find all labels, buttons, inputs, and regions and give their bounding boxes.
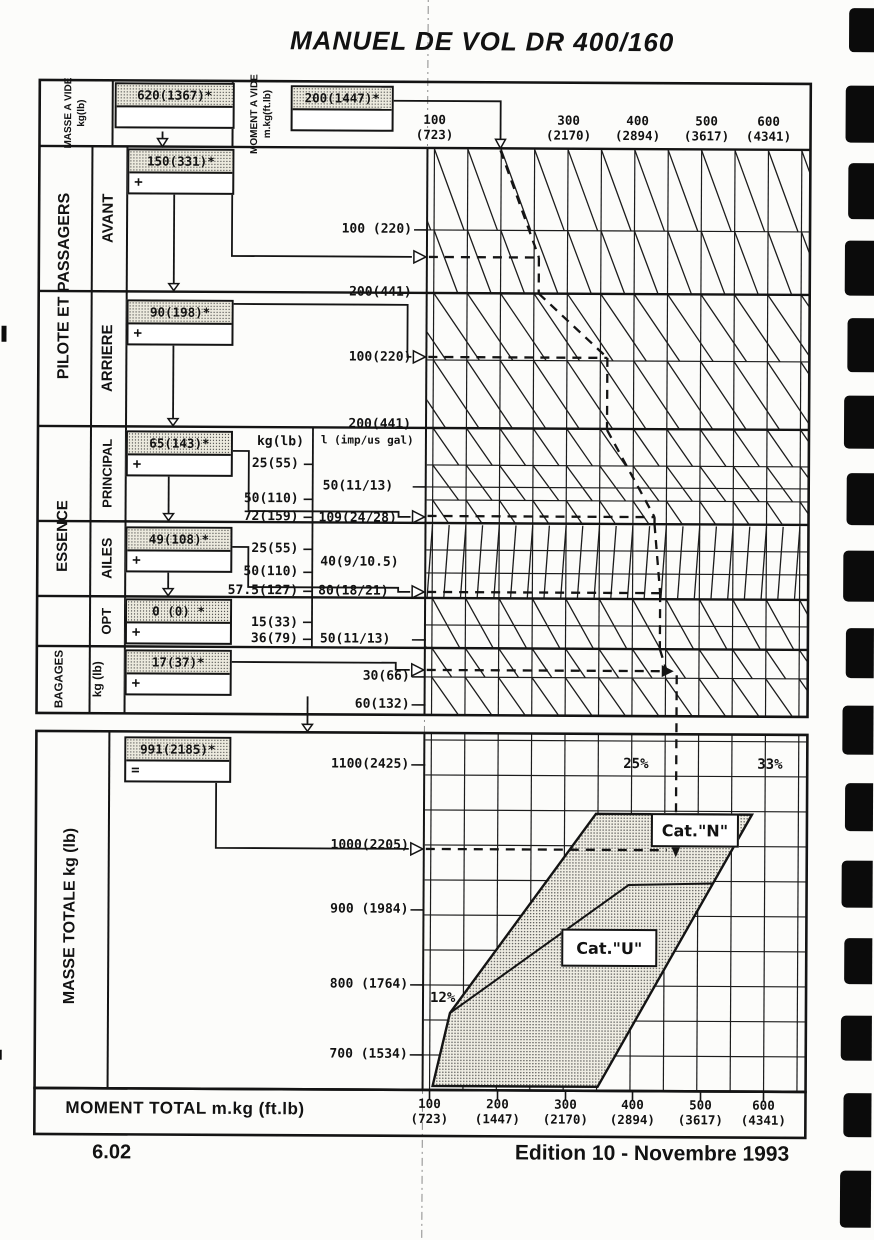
- section-main-tank-label: PRINCIPAL: [99, 439, 116, 508]
- baggage-value: 17(37)*: [127, 651, 230, 675]
- section-wing-tanks-label: AILES: [98, 538, 116, 579]
- total-scale-900: 900 (1984): [318, 901, 408, 916]
- wings-l-80: 80(18/21): [318, 583, 389, 598]
- edition-footer: Edition 10 - Novembre 1993: [389, 1141, 789, 1167]
- empty-moment-unit: m.kg(ft.lb): [261, 74, 274, 154]
- baggage-scale-30: 30(66): [330, 668, 410, 683]
- rear-scale-200: 200(441): [331, 416, 411, 431]
- front-seats-op: +: [129, 173, 232, 193]
- section-fuel-label: ESSENCE: [54, 500, 73, 572]
- total-mass-value: 991(2185)*: [126, 738, 229, 762]
- page-sheet: MANUEL DE VOL DR 400/160 MASSE A VIDE kg…: [0, 0, 874, 1240]
- upper-axis-100: 100(723): [416, 112, 454, 142]
- bottom-axis-title: MOMENT TOTAL m.kg (ft.lb): [65, 1098, 304, 1119]
- wing-tanks-box: 49(108)* +: [125, 526, 232, 573]
- wing-tanks-value: 49(108)*: [127, 528, 230, 552]
- rear-seats-op: +: [128, 324, 231, 344]
- empty-moment-label-text: MOMENT A VIDE: [249, 74, 262, 154]
- main-l-50: 50(11/13): [323, 478, 394, 493]
- baggage-scale-60: 60(132): [330, 696, 410, 711]
- section-opt-tank-label: OPT: [99, 608, 115, 635]
- section-front-label: AVANT: [100, 194, 119, 244]
- opt-kg-15: 15(33): [225, 615, 298, 630]
- opt-kg-36: 36(79): [225, 631, 298, 646]
- wings-kg-25: 25(55): [225, 541, 298, 556]
- upper-axis-300: 300(2170): [546, 113, 591, 143]
- section-rear-label: ARRIERE: [99, 324, 118, 392]
- total-scale-700: 700 (1534): [318, 1046, 408, 1061]
- wing-tanks-op: +: [127, 551, 230, 571]
- main-tank-op: +: [128, 455, 231, 475]
- cg-12pct-label: 12%: [430, 990, 455, 1006]
- total-mass-axis-label: MASSE TOTALE kg (lb): [60, 828, 81, 1004]
- main-kg-25: 25(55): [226, 456, 299, 471]
- wings-l-40: 40(9/10.5): [320, 554, 398, 569]
- rear-seats-box: 90(198)* +: [126, 299, 233, 346]
- front-scale-100: 100 (220): [332, 221, 412, 236]
- scanned-manual-page: MANUEL DE VOL DR 400/160 MASSE A VIDE kg…: [0, 0, 874, 1240]
- front-scale-200: 200(441): [332, 284, 412, 299]
- upper-axis-500: 500(3617): [684, 113, 729, 143]
- upper-axis-400: 400(2894): [615, 113, 660, 143]
- wings-kg-57: 57.5(127): [218, 583, 298, 598]
- cg-25pct-label: 25%: [623, 756, 648, 772]
- empty-moment-box: 200(1447)*: [291, 85, 394, 132]
- upper-axis-600: 600(4341): [746, 114, 791, 144]
- bottom-axis-100: 100(723): [411, 1096, 449, 1126]
- rear-scale-100: 100(220): [331, 349, 411, 364]
- main-tank-value: 65(143)*: [128, 432, 231, 456]
- baggage-op: +: [127, 674, 230, 694]
- binding-scan-marks: [840, 8, 874, 1228]
- empty-moment-value: 200(1447)*: [293, 87, 392, 111]
- scan-specks: [0, 326, 7, 1060]
- front-seats-value: 150(331)*: [129, 150, 232, 174]
- fuel-liters-header: l (imp/us gal): [321, 433, 414, 446]
- page-number: 6.02: [92, 1141, 131, 1164]
- loading-guide-diagonals: [365, 149, 874, 718]
- main-kg-50: 50(110): [226, 491, 299, 506]
- total-mass-box: 991(2185)* =: [124, 736, 231, 783]
- empty-moment-label: MOMENT A VIDE m.kg(ft.lb): [249, 74, 274, 154]
- bottom-axis-400: 400(2894): [610, 1097, 655, 1127]
- opt-tank-value: 0 (0) *: [127, 600, 230, 624]
- opt-l-50: 50(11/13): [320, 631, 391, 646]
- section-baggage-unit: kg (lb): [90, 661, 105, 697]
- rear-seats-value: 90(198)*: [129, 301, 232, 325]
- wings-kg-50: 50(110): [225, 564, 298, 579]
- section-pilots-label: PILOTE ET PASSAGERS: [54, 193, 75, 380]
- empty-mass-label-text: MASSE A VIDE: [63, 78, 76, 149]
- empty-mass-box: 620(1367)*: [115, 82, 235, 129]
- baggage-box: 17(37)* +: [125, 649, 232, 696]
- empty-mass-unit: kg(lb): [75, 78, 88, 149]
- total-scale-800: 800 (1764): [318, 976, 408, 991]
- page-title: MANUEL DE VOL DR 400/160: [290, 25, 674, 58]
- fuel-kg-header: kg(lb): [231, 434, 304, 449]
- empty-mass-label: MASSE A VIDE kg(lb): [63, 78, 88, 149]
- bottom-axis-500: 500(3617): [678, 1097, 723, 1127]
- bottom-axis-300: 300(2170): [543, 1097, 588, 1127]
- main-kg-72: 72(159): [226, 509, 299, 524]
- opt-tank-op: +: [127, 623, 230, 643]
- cg-33pct-label: 33%: [757, 757, 782, 773]
- opt-tank-box: 0 (0) * +: [125, 598, 232, 645]
- main-l-109: 109(24/28): [318, 510, 396, 525]
- section-baggage-label: BAGAGES: [52, 650, 67, 708]
- front-seats-box: 150(331)* +: [127, 148, 234, 195]
- total-scale-1100: 1100(2425): [319, 756, 409, 771]
- total-scale-1000: 1000(2205): [319, 837, 409, 852]
- total-mass-op: =: [126, 761, 229, 781]
- category-u-badge: Cat."U": [561, 929, 657, 968]
- empty-mass-value: 620(1367)*: [117, 84, 233, 108]
- main-tank-box: 65(143)* +: [126, 430, 233, 477]
- category-n-badge: Cat."N": [651, 813, 739, 847]
- bottom-axis-600: 600(4341): [741, 1098, 786, 1128]
- bottom-axis-200: 200(1447): [475, 1096, 520, 1126]
